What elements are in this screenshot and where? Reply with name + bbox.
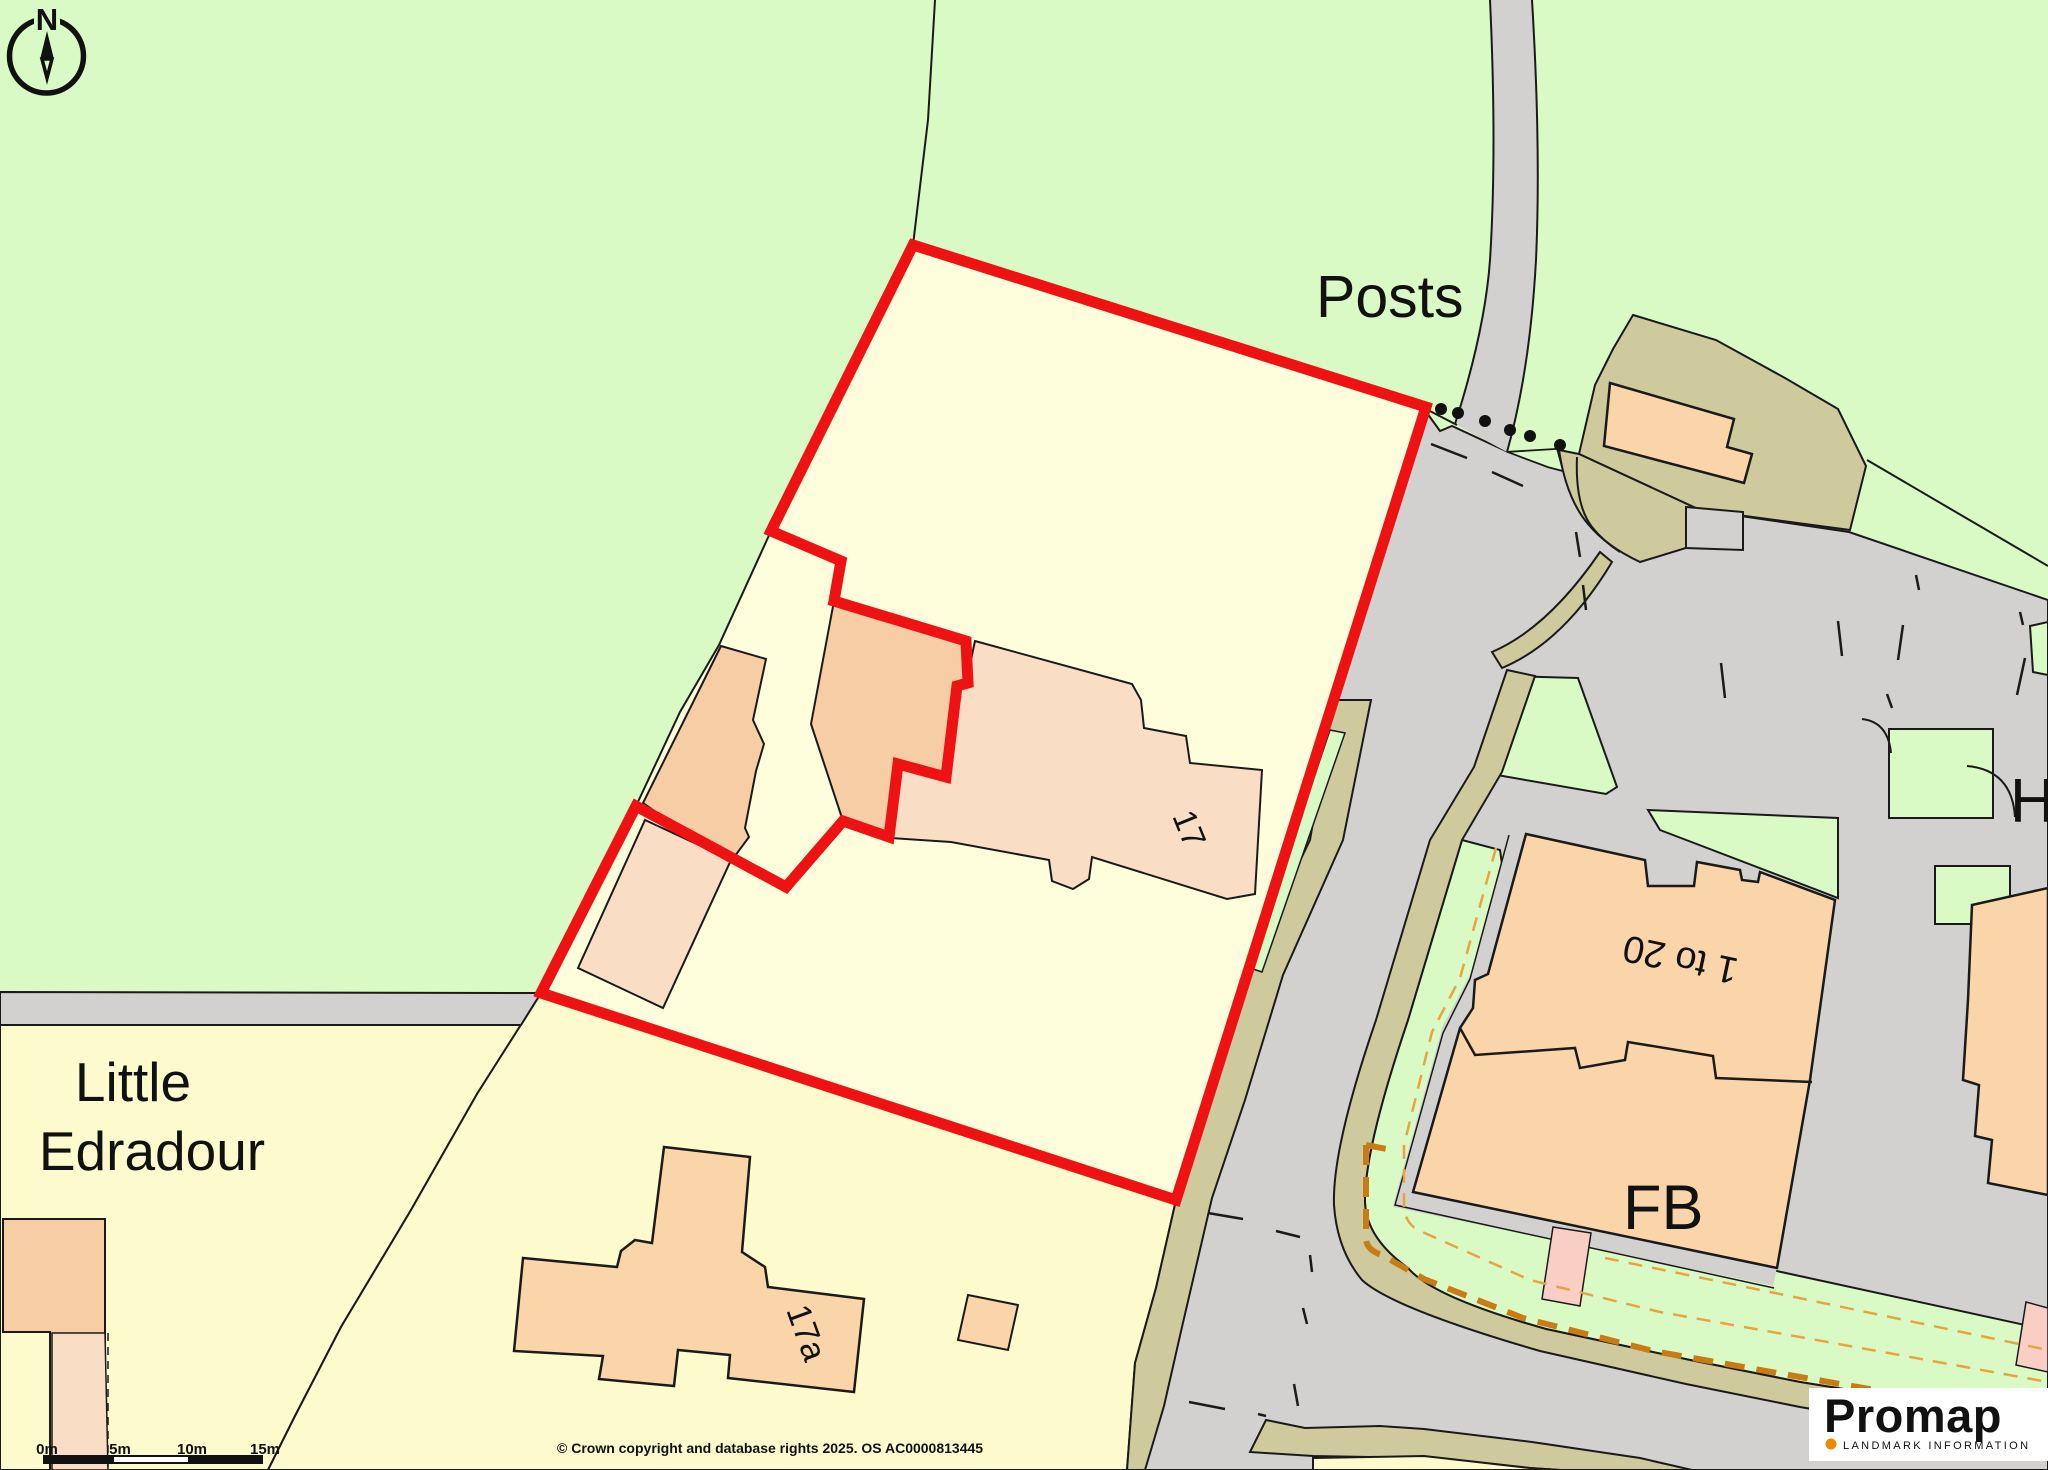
svg-text:Posts: Posts [1316, 264, 1464, 330]
svg-text:H: H [2010, 767, 2048, 836]
svg-text:Little: Little [75, 1051, 191, 1113]
svg-text:FB: FB [1623, 1173, 1704, 1243]
svg-text:5m: 5m [109, 1441, 131, 1458]
svg-text:Edradour: Edradour [39, 1120, 265, 1182]
svg-text:Promap: Promap [1824, 1389, 2002, 1442]
svg-text:15m: 15m [250, 1441, 280, 1458]
svg-text:0m: 0m [36, 1441, 58, 1458]
svg-text:N: N [36, 2, 58, 37]
svg-text:LANDMARK INFORMATION: LANDMARK INFORMATION [1843, 1440, 2030, 1452]
svg-text:10m: 10m [177, 1441, 207, 1458]
svg-text:© Crown copyright and database: © Crown copyright and database rights 20… [557, 1440, 983, 1456]
